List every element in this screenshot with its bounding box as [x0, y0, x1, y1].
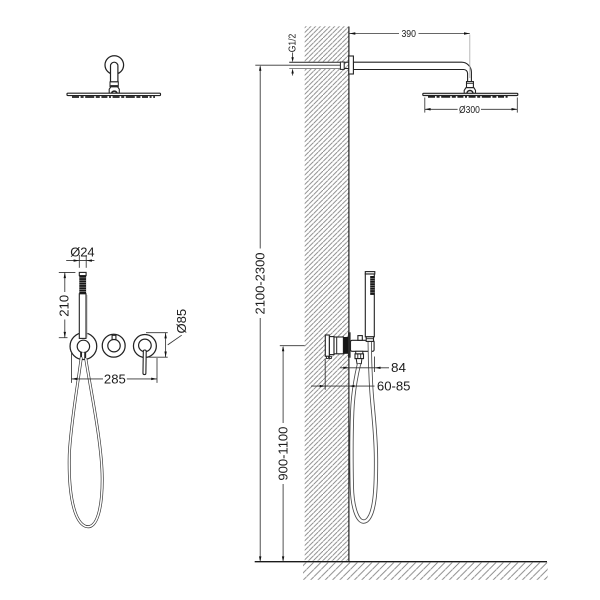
svg-text:285: 285: [104, 371, 126, 386]
svg-text:Ø24: Ø24: [70, 244, 94, 259]
svg-text:Ø85: Ø85: [174, 309, 189, 334]
svg-text:900-1100: 900-1100: [275, 427, 290, 481]
svg-text:84: 84: [391, 360, 406, 375]
svg-text:390: 390: [401, 29, 416, 40]
svg-text:G1/2: G1/2: [288, 33, 299, 52]
svg-text:2100-2300: 2100-2300: [253, 253, 268, 315]
svg-text:Ø300: Ø300: [459, 105, 480, 116]
svg-text:60-85: 60-85: [377, 378, 411, 393]
svg-text:210: 210: [56, 295, 71, 317]
